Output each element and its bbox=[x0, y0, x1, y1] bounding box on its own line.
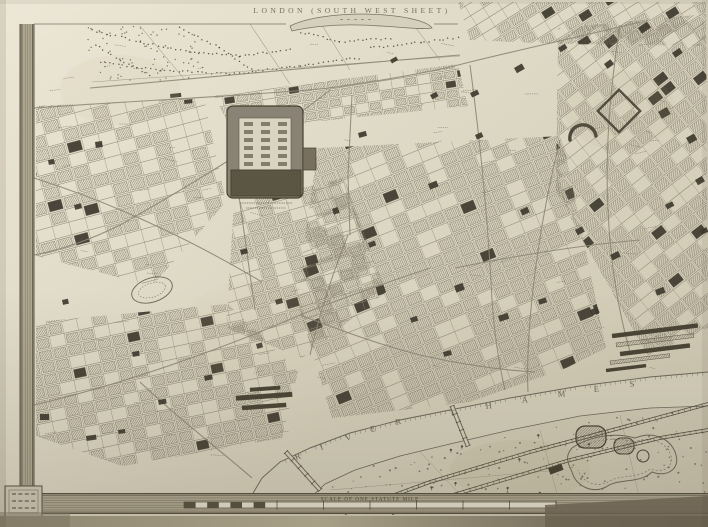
scanned-antique-map-page: RIVERTHAMES SCALE OF ONE STATUTE MILE LO… bbox=[0, 0, 708, 527]
map-sheet: RIVERTHAMES SCALE OF ONE STATUTE MILE LO… bbox=[0, 0, 708, 527]
paper-shading bbox=[0, 0, 708, 527]
